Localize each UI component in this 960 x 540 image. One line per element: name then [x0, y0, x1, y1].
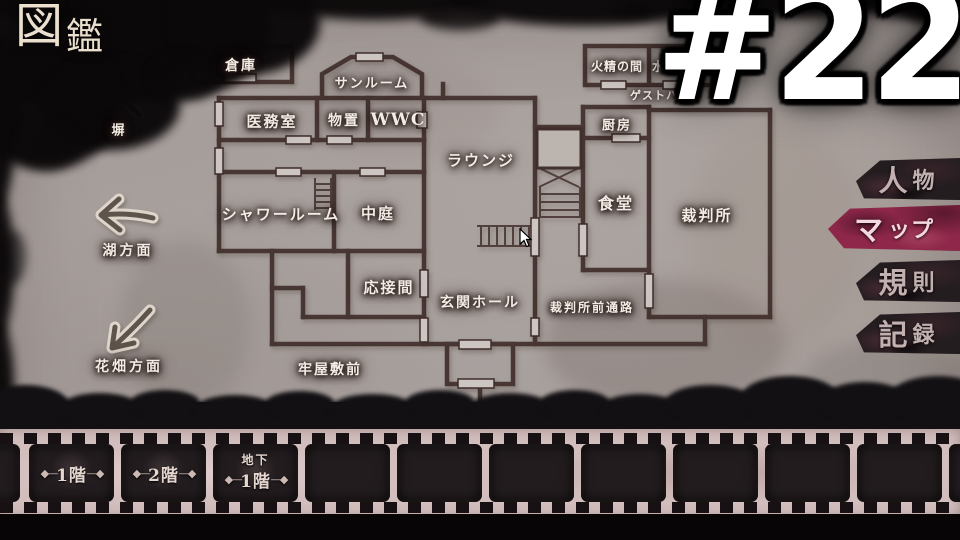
film-frame [397, 444, 482, 502]
film-strip: ◆―1階―◆ ◆―2階―◆ 地下 ◆―1階―◆ [0, 429, 960, 517]
foliage-bump [60, 393, 140, 423]
tab-people-label: 人 [878, 158, 907, 200]
floor-button-2f-label: 2階 [148, 461, 179, 486]
room-label-wwc: WWC [371, 110, 426, 130]
room-label-kitchen: 厨房 [602, 115, 632, 134]
film-frame [673, 444, 758, 502]
room-label-courtyard: 中庭 [361, 203, 395, 224]
tab-map-label: マ [854, 207, 883, 249]
film-frame [305, 444, 390, 502]
room-label-sunroom: サンルーム [335, 73, 410, 92]
floor-button-b1[interactable]: 地下 ◆―1階―◆ [213, 444, 298, 502]
mouse-cursor-icon [519, 228, 535, 248]
ink-blob [610, 2, 656, 18]
outdoor-label-fence: 塀 [111, 120, 126, 139]
stairs-group [315, 168, 580, 246]
arrow-flower-field-icon [112, 310, 150, 348]
bottom-black-bar [0, 514, 960, 540]
title-char-1: 図 [15, 0, 63, 54]
foliage-bump [130, 390, 200, 416]
ink-blob [420, 4, 500, 30]
ornament: ―◆ [271, 473, 286, 486]
tab-rules-label: 規 [878, 260, 907, 302]
tab-records-label: 記 [878, 312, 907, 354]
ornament: ◆― [41, 467, 56, 480]
title-char-2: 鑑 [66, 15, 103, 58]
foliage-bump [405, 390, 475, 416]
room-label-storeroom: 物置 [328, 110, 360, 130]
room-label-infirmary: 医務室 [246, 111, 297, 132]
room-label-lounge: ラウンジ [447, 150, 515, 171]
foliage-bump [330, 394, 415, 424]
room-label-courthouse: 裁判所 [681, 205, 732, 226]
film-frame [857, 444, 942, 502]
foliage-bump [265, 391, 335, 417]
room-label-storage-barn: 倉庫 [225, 55, 257, 75]
film-frame [949, 444, 960, 502]
ornament: ―◆ [179, 467, 194, 480]
room-label-shower-room: シャワールーム [222, 204, 341, 225]
episode-number-overlay: #22 [655, 0, 960, 124]
stairwell-landing [537, 129, 581, 168]
foliage-bump [540, 390, 610, 416]
ink-blob-title [18, 120, 78, 170]
floor-button-b1-sub: 地下 [241, 454, 269, 467]
ornament: ―◆ [87, 467, 102, 480]
foliage-bump [195, 395, 275, 423]
floor-button-1f[interactable]: ◆―1階―◆ [29, 444, 114, 502]
floor-button-b1-label: 1階 [240, 467, 271, 492]
ornament: ◆― [133, 467, 148, 480]
room-label-prison-front: 牢屋敷前 [298, 359, 362, 379]
compendium-map-screen: 倉庫 サンルーム 医務室 物置 WWC ラウンジ シャワールーム 中庭 応接間 … [0, 0, 960, 540]
page-title: 図鑑 [15, 2, 100, 50]
film-frame [581, 444, 666, 502]
room-label-drawing-room: 応接間 [363, 277, 414, 298]
film-sprockets-bottom [0, 502, 960, 513]
ink-blob [0, 230, 26, 284]
floor-button-1f-label: 1階 [56, 461, 87, 486]
room-label-dining-hall: 食堂 [598, 190, 634, 214]
ornament: ◆― [225, 473, 240, 486]
ink-blob-title [150, 55, 220, 100]
outdoor-label-lake: 湖方面 [103, 240, 154, 260]
floor-button-2f[interactable]: ◆―2階―◆ [121, 444, 206, 502]
outdoor-label-flower-field: 花畑方面 [95, 356, 163, 376]
film-sprockets-top [0, 433, 960, 444]
film-frame [0, 444, 20, 502]
room-label-courthouse-passage: 裁判所前通路 [550, 299, 634, 316]
film-frame [489, 444, 574, 502]
tab-map[interactable]: マップ [828, 205, 960, 251]
arrow-lake-icon [101, 199, 153, 230]
room-label-entrance-hall: 玄関ホール [440, 292, 520, 312]
foliage-bump [470, 393, 550, 421]
film-frame [765, 444, 850, 502]
room-label-fire-spirit-room: 火精の間 [591, 58, 643, 75]
